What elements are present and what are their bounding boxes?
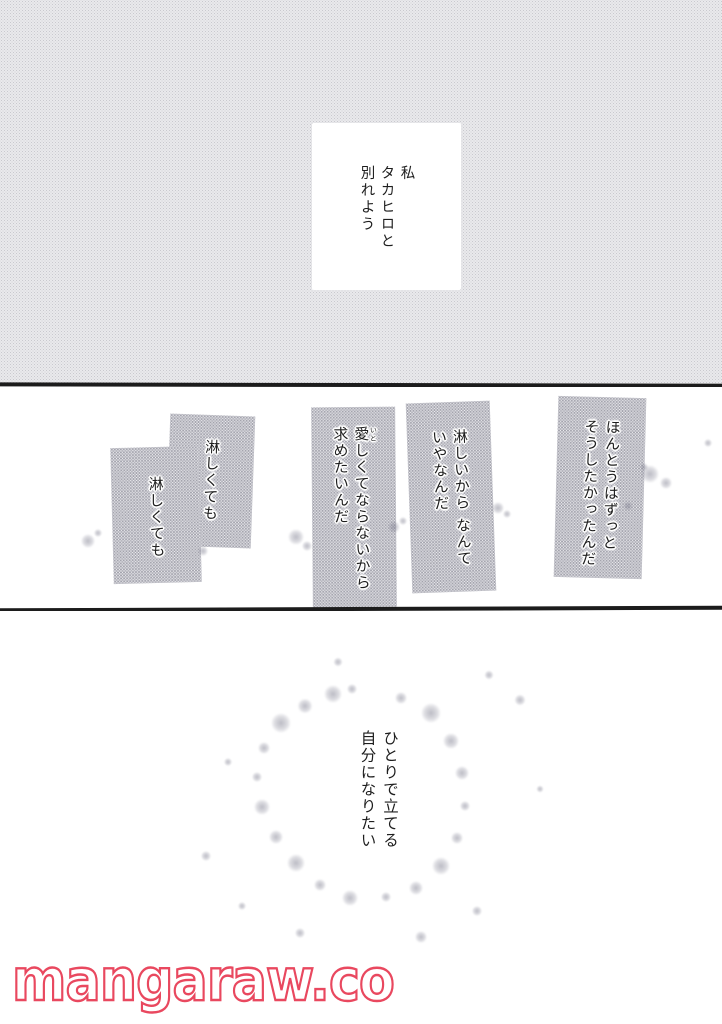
screentone-speck xyxy=(443,733,459,749)
speech-text: 私 タカヒロと 別れよう xyxy=(357,165,417,290)
screentone-speck xyxy=(472,906,482,916)
screentone-speck xyxy=(409,881,423,895)
screentone-speck xyxy=(252,772,262,782)
screentone-speck xyxy=(660,477,672,489)
screentone-speck xyxy=(395,692,407,704)
screentone-speck xyxy=(302,541,312,551)
screentone-speck xyxy=(238,902,246,910)
narration-text: 淋しくても xyxy=(144,476,168,584)
screentone-speck xyxy=(258,742,270,754)
monologue-line: 自分になりたい xyxy=(356,730,378,849)
narration-line: ほんとうはずっと xyxy=(598,419,623,578)
narration-text: 淋しいから なんて いやなんだ xyxy=(428,428,476,592)
screentone-speck xyxy=(485,671,494,680)
furigana: いと xyxy=(369,426,377,443)
screentone-speck xyxy=(515,695,526,706)
narration-box-even-if-lonely-2: 淋しくても xyxy=(110,446,202,584)
screentone-speck xyxy=(415,931,427,943)
screentone-speck xyxy=(421,703,441,723)
screentone-speck xyxy=(298,699,313,714)
narration-box-lonely-reason: 淋しいから なんて いやなんだ xyxy=(406,401,497,594)
narration-text: 淋しくても xyxy=(198,439,223,548)
screentone-speck xyxy=(455,766,469,780)
narration-box-love: 愛いとしくてならないから 求めたいんだ xyxy=(311,407,397,608)
screentone-speck xyxy=(399,517,407,525)
screentone-speck xyxy=(94,529,102,537)
narration-line: そうしたかったんだ xyxy=(577,418,602,577)
screentone-speck xyxy=(287,854,305,872)
narration-line-rest: しくてならないから xyxy=(352,442,371,591)
dialogue-line: 別れよう xyxy=(357,165,377,290)
screentone-speck xyxy=(451,832,463,844)
screentone-speck xyxy=(81,534,95,548)
narration-text: ほんとうはずっと そうしたかったんだ xyxy=(577,418,623,578)
screentone-speck xyxy=(324,685,342,703)
manga-panel-middle: ほんとうはずっと そうしたかったんだ 淋しいから なんて いやなんだ 愛いとしく… xyxy=(0,387,722,607)
ruby-base: 愛 xyxy=(352,426,370,443)
dialogue-line: タカヒロと xyxy=(377,165,397,290)
narration-box-honest: ほんとうはずっと そうしたかったんだ xyxy=(554,396,647,579)
screentone-speck xyxy=(295,928,305,938)
dialogue-line: 私 xyxy=(397,165,417,290)
screentone-speck xyxy=(388,521,400,533)
ruby-annotated-kanji: 愛いと xyxy=(352,426,370,443)
screentone-speck xyxy=(640,463,648,471)
screentone-speck xyxy=(271,713,291,733)
screentone-speck xyxy=(381,892,391,902)
screentone-speck xyxy=(269,830,283,844)
screentone-speck xyxy=(537,786,544,793)
screentone-speck xyxy=(503,510,511,518)
site-watermark: mangaraw.co xyxy=(12,949,394,1013)
narration-line: 愛いとしくてならないから xyxy=(350,426,379,607)
screentone-speck xyxy=(334,658,343,667)
screentone-speck xyxy=(624,502,633,511)
manga-panel-top: 私 タカヒロと 別れよう xyxy=(0,0,722,383)
screentone-speck xyxy=(288,529,304,545)
manga-panel-bottom: ひとりで立てる 自分になりたい mangaraw.co xyxy=(0,611,722,1024)
screentone-speck xyxy=(314,879,326,891)
narration-line: 淋しくても xyxy=(144,476,168,584)
screentone-speck xyxy=(254,799,270,815)
screentone-speck xyxy=(460,801,470,811)
screentone-speck xyxy=(432,857,450,875)
narration-text: 愛いとしくてならないから 求めたいんだ xyxy=(329,426,379,607)
screentone-speck xyxy=(224,758,232,766)
monologue-line: ひとりで立てる xyxy=(378,730,400,849)
screentone-speck xyxy=(198,546,208,556)
monologue-text: ひとりで立てる 自分になりたい xyxy=(356,730,401,849)
screentone-speck xyxy=(201,851,211,861)
screentone-speck xyxy=(347,684,357,694)
screentone-speck xyxy=(342,890,358,906)
narration-line: 淋しくても xyxy=(198,439,223,548)
manga-page: 私 タカヒロと 別れよう ほんとうはずっと そうしたかったんだ 淋しいから なん… xyxy=(0,0,722,1024)
screentone-speck xyxy=(704,439,712,447)
speech-bubble: 私 タカヒロと 別れよう xyxy=(312,123,461,290)
narration-line: 求めたいんだ xyxy=(329,426,352,607)
